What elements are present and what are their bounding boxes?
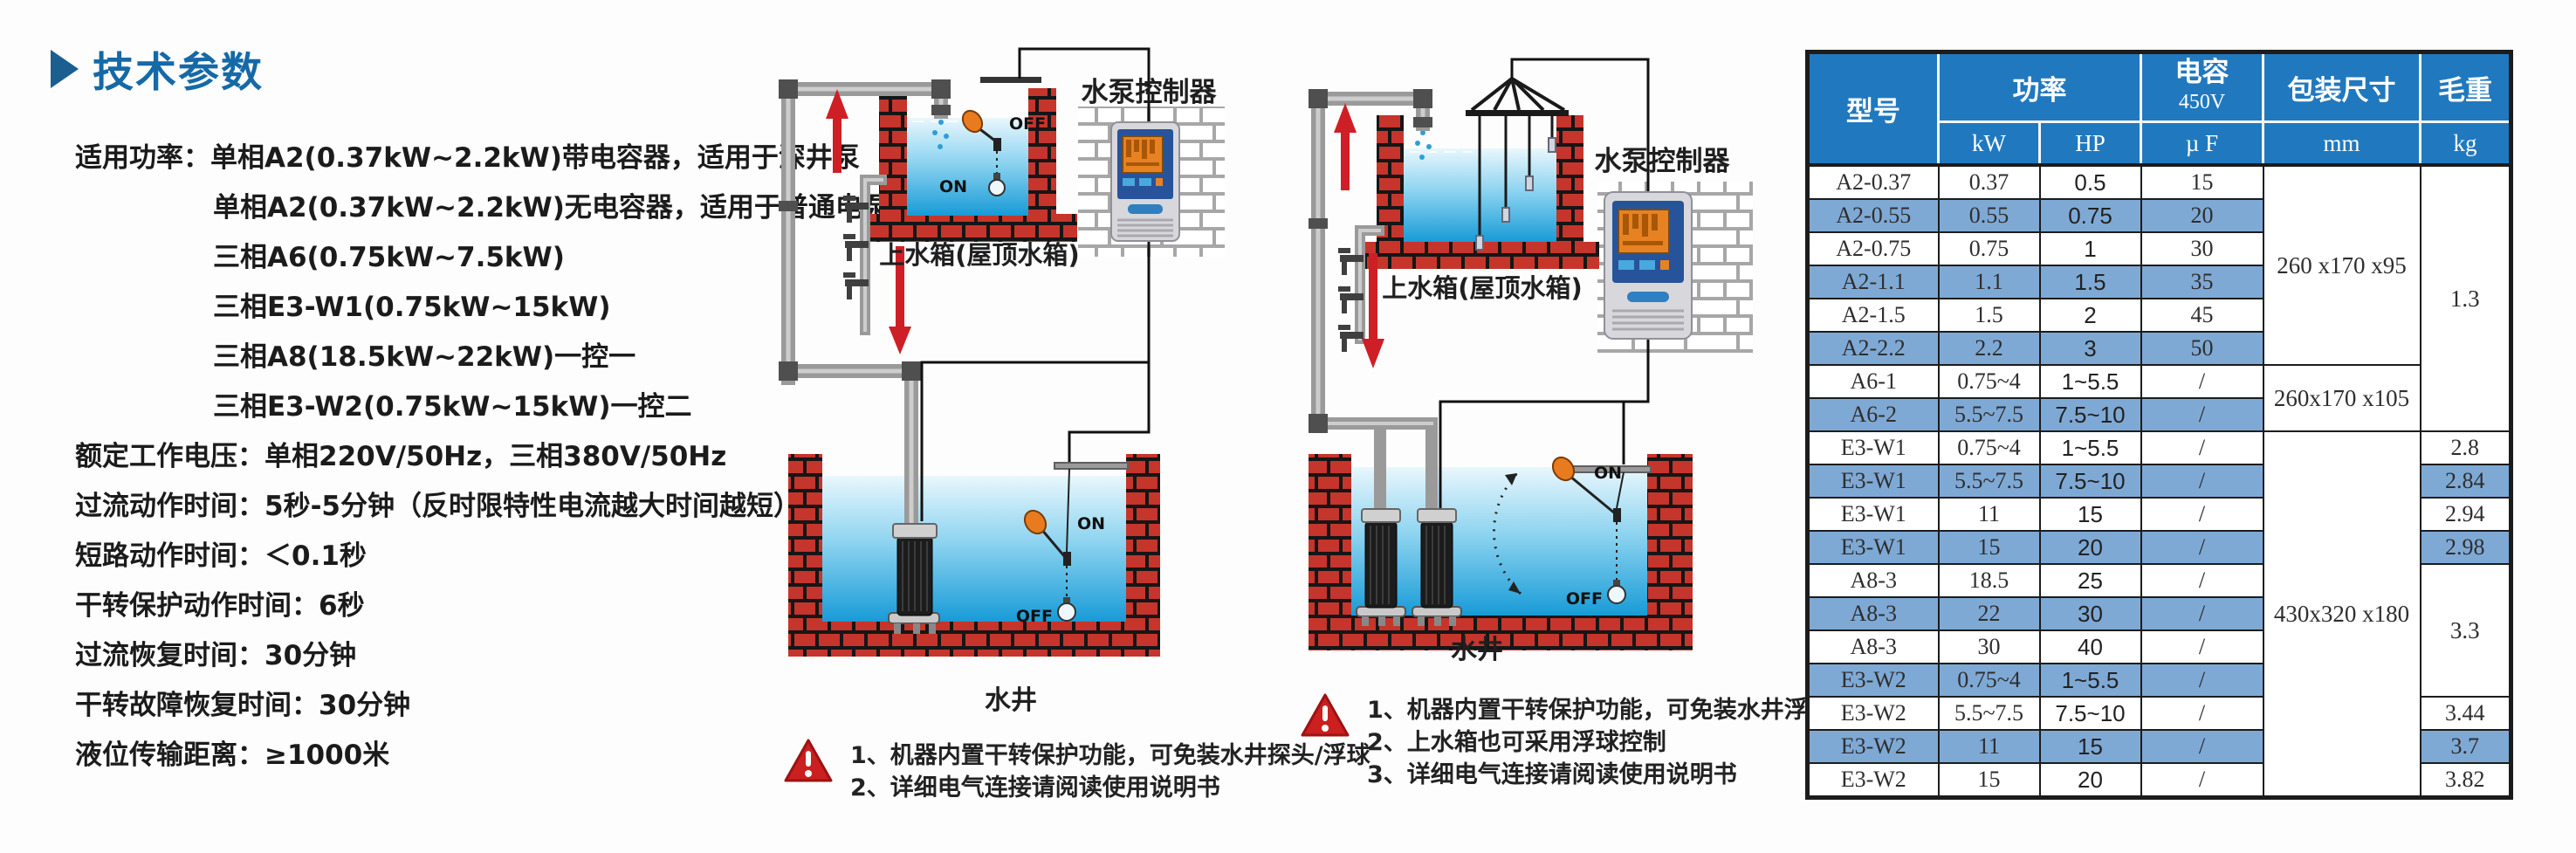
table-row: A2-0.370.370.515260 x170 x951.3	[1808, 165, 2511, 199]
installation-diagram-1: OFF ON	[768, 35, 1274, 737]
cell-hp: 1.5	[2040, 265, 2141, 299]
cell-pkg: 260 x170 x95	[2263, 165, 2421, 365]
cell-uf: 45	[2141, 299, 2263, 332]
cell-uf: /	[2141, 398, 2263, 431]
cell-model: A8-3	[1808, 597, 1939, 630]
cap-voltage: 450V	[2142, 87, 2262, 117]
cell-uf: /	[2141, 763, 2263, 798]
cell-hp: 20	[2040, 763, 2141, 798]
cell-uf: /	[2141, 664, 2263, 697]
cell-kw: 1.5	[1939, 299, 2040, 332]
cell-uf: /	[2141, 630, 2263, 664]
cell-model: A2-0.37	[1808, 165, 1939, 199]
warning-icon	[784, 738, 833, 783]
cell-model: A8-3	[1808, 630, 1939, 664]
cell-weight: 2.8	[2421, 431, 2511, 464]
cell-hp: 0.5	[2040, 165, 2141, 199]
cell-kw: 5.5~7.5	[1939, 464, 2040, 498]
col-uf: µ F	[2141, 122, 2263, 166]
spec-line-9: 干转保护动作时间：6秒	[51, 581, 775, 631]
tank-label-1: 上水箱(屋顶水箱)	[879, 240, 1080, 270]
cell-model: E3-W2	[1808, 697, 1939, 730]
cell-hp: 7.5~10	[2040, 464, 2141, 498]
cell-model: A2-1.1	[1808, 265, 1939, 299]
cell-uf: /	[2141, 365, 2263, 398]
tank-off-label: OFF	[1009, 114, 1046, 134]
well-label-1: 水井	[985, 685, 1037, 716]
warning-icon	[1301, 692, 1350, 738]
cell-kw: 11	[1939, 730, 2040, 763]
well-on-label-2: ON	[1594, 464, 1622, 483]
cell-hp: 1~5.5	[2040, 365, 2141, 398]
cell-hp: 7.5~10	[2040, 398, 2141, 431]
cell-weight: 1.3	[2421, 165, 2511, 431]
spec-line-10: 过流恢复时间：30分钟	[51, 631, 775, 681]
col-weight: 毛重	[2421, 52, 2511, 122]
cell-kw: 11	[1939, 498, 2040, 531]
diagram-1-notes: 1、机器内置干转保护功能，可免装水井探头/浮球2、详细电气连接请阅读使用说明书	[784, 738, 1370, 804]
cell-hp: 40	[2040, 630, 2141, 664]
cell-hp: 20	[2040, 531, 2141, 564]
spec-line-11: 干转故障恢复时间：30分钟	[51, 681, 775, 731]
flow-arrow-up	[1334, 103, 1357, 190]
cell-uf: /	[2141, 531, 2263, 564]
section-title-text: 技术参数	[93, 38, 264, 99]
cell-hp: 3	[2040, 332, 2141, 365]
cell-hp: 2	[2040, 299, 2141, 332]
cell-weight: 3.44	[2421, 697, 2511, 730]
cell-kw: 0.75	[1939, 232, 2040, 265]
roof-tank	[1364, 79, 1599, 269]
cell-uf: /	[2141, 498, 2263, 531]
controller-badge	[1128, 204, 1163, 214]
cell-model: E3-W1	[1808, 464, 1939, 498]
cell-uf: /	[2141, 730, 2263, 763]
controller-icon	[1111, 122, 1179, 241]
cell-kw: 5.5~7.5	[1939, 398, 2040, 431]
cell-weight: 2.94	[2421, 498, 2511, 531]
note-line: 2、详细电气连接请阅读使用说明书	[850, 772, 1370, 804]
col-package: 包装尺寸	[2263, 52, 2421, 122]
float-bracket	[980, 77, 1041, 83]
cell-model: A2-0.55	[1808, 199, 1939, 232]
tech-params-section: 技术参数 适用功率：单相A2(0.37kW~2.2kW)带电容器，适用于深井泵单…	[51, 38, 775, 781]
cap-title: 电容	[2142, 58, 2262, 87]
diagram-2-svg: 水泵控制器	[1292, 35, 1807, 698]
spec-line-2: 三相A6(0.75kW~7.5kW)	[51, 233, 775, 283]
cell-weight: 3.7	[2421, 730, 2511, 763]
spec-line-1: 单相A2(0.37kW~2.2kW)无电容器，适用于普通电泵	[51, 183, 775, 233]
cell-kw: 1.1	[1939, 265, 2040, 299]
controller-label-1: 水泵控制器	[1082, 77, 1218, 108]
spec-table-wrap: 型号 功率 电容 450V 包装尺寸 毛重 kW HP µ F mm kg	[1805, 50, 2513, 800]
cell-kw: 18.5	[1939, 564, 2040, 597]
table-header: 型号 功率 电容 450V 包装尺寸 毛重 kW HP µ F mm kg	[1808, 52, 2511, 166]
cell-kw: 5.5~7.5	[1939, 697, 2040, 730]
spec-line-0: 适用功率：单相A2(0.37kW~2.2kW)带电容器，适用于深井泵	[51, 134, 775, 183]
well-water	[822, 476, 1126, 622]
cell-uf: /	[2141, 697, 2263, 730]
note-line: 1、机器内置干转保护功能，可免装水井浮球	[1367, 694, 1831, 726]
note-lines: 1、机器内置干转保护功能，可免装水井浮球2、上水箱也可采用浮球控制3、详细电气连…	[1367, 692, 1831, 791]
cell-hp: 25	[2040, 564, 2141, 597]
spec-line-5: 三相E3-W2(0.75kW~15kW)一控二	[51, 382, 775, 432]
note-line: 1、机器内置干转保护功能，可免装水井探头/浮球	[850, 739, 1370, 772]
col-mm: mm	[2263, 122, 2421, 166]
note-lines: 1、机器内置干转保护功能，可免装水井探头/浮球2、详细电气连接请阅读使用说明书	[850, 738, 1370, 804]
cell-model: E3-W1	[1808, 531, 1939, 564]
cell-model: E3-W2	[1808, 763, 1939, 798]
spec-line-7: 过流动作时间：5秒-5分钟（反时限特性电流越大时间越短）	[51, 482, 775, 532]
cell-model: E3-W2	[1808, 730, 1939, 763]
cell-kw: 15	[1939, 531, 2040, 564]
cell-uf: /	[2141, 564, 2263, 597]
controller-icon	[1604, 192, 1692, 339]
cell-model: A2-0.75	[1808, 232, 1939, 265]
cell-kw: 0.55	[1939, 199, 2040, 232]
page-title: 技术参数	[51, 38, 775, 99]
cell-uf: /	[2141, 431, 2263, 464]
cell-uf: 20	[2141, 199, 2263, 232]
cell-model: A6-2	[1808, 398, 1939, 431]
table-body: A2-0.370.370.515260 x170 x951.3A2-0.550.…	[1808, 165, 2511, 798]
cell-weight: 3.3	[2421, 564, 2511, 697]
cell-uf: /	[2141, 597, 2263, 630]
cell-kw: 0.37	[1939, 165, 2040, 199]
cell-hp: 15	[2040, 498, 2141, 531]
col-capacitance: 电容 450V	[2141, 52, 2263, 122]
spec-line-3: 三相E3-W1(0.75kW~15kW)	[51, 283, 775, 333]
diagram-2-notes: 1、机器内置干转保护功能，可免装水井浮球2、上水箱也可采用浮球控制3、详细电气连…	[1301, 692, 1831, 791]
cell-uf: 35	[2141, 265, 2263, 299]
well-on-label-1: ON	[1077, 514, 1105, 533]
diagram-1-svg: OFF ON	[768, 35, 1274, 733]
cell-weight: 2.84	[2421, 464, 2511, 498]
cell-model: A2-2.2	[1808, 332, 1939, 365]
cell-pkg: 430x320 x180	[2263, 431, 2421, 798]
controller-badge	[1627, 292, 1669, 302]
spec-line-6: 额定工作电压：单相220V/50Hz，三相380V/50Hz	[51, 432, 775, 482]
col-kg: kg	[2421, 122, 2511, 166]
table-row: E3-W10.75~41~5.5/430x320 x1802.8	[1808, 431, 2511, 464]
cell-model: A2-1.5	[1808, 299, 1939, 332]
cell-uf: 30	[2141, 232, 2263, 265]
cell-hp: 7.5~10	[2040, 697, 2141, 730]
col-kw: kW	[1939, 122, 2040, 166]
cell-kw: 30	[1939, 630, 2040, 664]
spec-list: 适用功率：单相A2(0.37kW~2.2kW)带电容器，适用于深井泵单相A2(0…	[51, 134, 775, 781]
cell-model: E3-W2	[1808, 664, 1939, 697]
cell-hp: 1	[2040, 232, 2141, 265]
cell-kw: 2.2	[1939, 332, 2040, 365]
cell-hp: 0.75	[2040, 199, 2141, 232]
spec-table: 型号 功率 电容 450V 包装尺寸 毛重 kW HP µ F mm kg	[1805, 50, 2513, 800]
cell-kw: 0.75~4	[1939, 431, 2040, 464]
triangle-bullet-icon	[51, 50, 79, 88]
cell-pkg: 260x170 x105	[2263, 365, 2421, 431]
tank-label-2: 上水箱(屋顶水箱)	[1382, 273, 1583, 303]
controller-label-2: 水泵控制器	[1595, 146, 1731, 177]
spec-line-12: 液位传输距离：≥1000米	[51, 731, 775, 781]
well	[788, 454, 1160, 657]
note-line: 3、详细电气连接请阅读使用说明书	[1367, 759, 1831, 791]
flow-arrow-up	[826, 89, 848, 173]
cell-hp: 1~5.5	[2040, 431, 2141, 464]
installation-diagram-2: 水泵控制器	[1292, 35, 1807, 702]
tank-on-label: ON	[939, 177, 967, 196]
cell-model: A6-1	[1808, 365, 1939, 398]
cell-kw: 0.75~4	[1939, 365, 2040, 398]
spec-line-8: 短路动作时间：＜0.1秒	[51, 532, 775, 581]
cell-kw: 22	[1939, 597, 2040, 630]
cell-uf: 15	[2141, 165, 2263, 199]
cell-hp: 1~5.5	[2040, 664, 2141, 697]
cell-uf: 50	[2141, 332, 2263, 365]
cell-kw: 0.75~4	[1939, 664, 2040, 697]
spec-line-4: 三相A8(18.5kW~22kW)一控一	[51, 333, 775, 382]
col-model: 型号	[1808, 52, 1939, 166]
cell-model: E3-W1	[1808, 498, 1939, 531]
cell-kw: 15	[1939, 763, 2040, 798]
cell-uf: /	[2141, 464, 2263, 498]
cell-weight: 2.98	[2421, 531, 2511, 564]
well-off-label-2: OFF	[1566, 589, 1603, 609]
well-off-label-1: OFF	[1016, 607, 1053, 626]
roof-tank: OFF ON	[866, 77, 1077, 242]
well-label-2: 水井	[1451, 635, 1503, 665]
cell-model: A8-3	[1808, 564, 1939, 597]
table-row: A6-10.75~41~5.5/260x170 x105	[1808, 365, 2511, 398]
cell-model: E3-W1	[1808, 431, 1939, 464]
page: 技术参数 适用功率：单相A2(0.37kW~2.2kW)带电容器，适用于深井泵单…	[0, 0, 2576, 853]
cell-weight: 3.82	[2421, 763, 2511, 798]
col-power: 功率	[1939, 52, 2141, 122]
cell-hp: 30	[2040, 597, 2141, 630]
note-line: 2、上水箱也可采用浮球控制	[1367, 726, 1831, 759]
cell-hp: 15	[2040, 730, 2141, 763]
col-hp: HP	[2040, 122, 2141, 166]
